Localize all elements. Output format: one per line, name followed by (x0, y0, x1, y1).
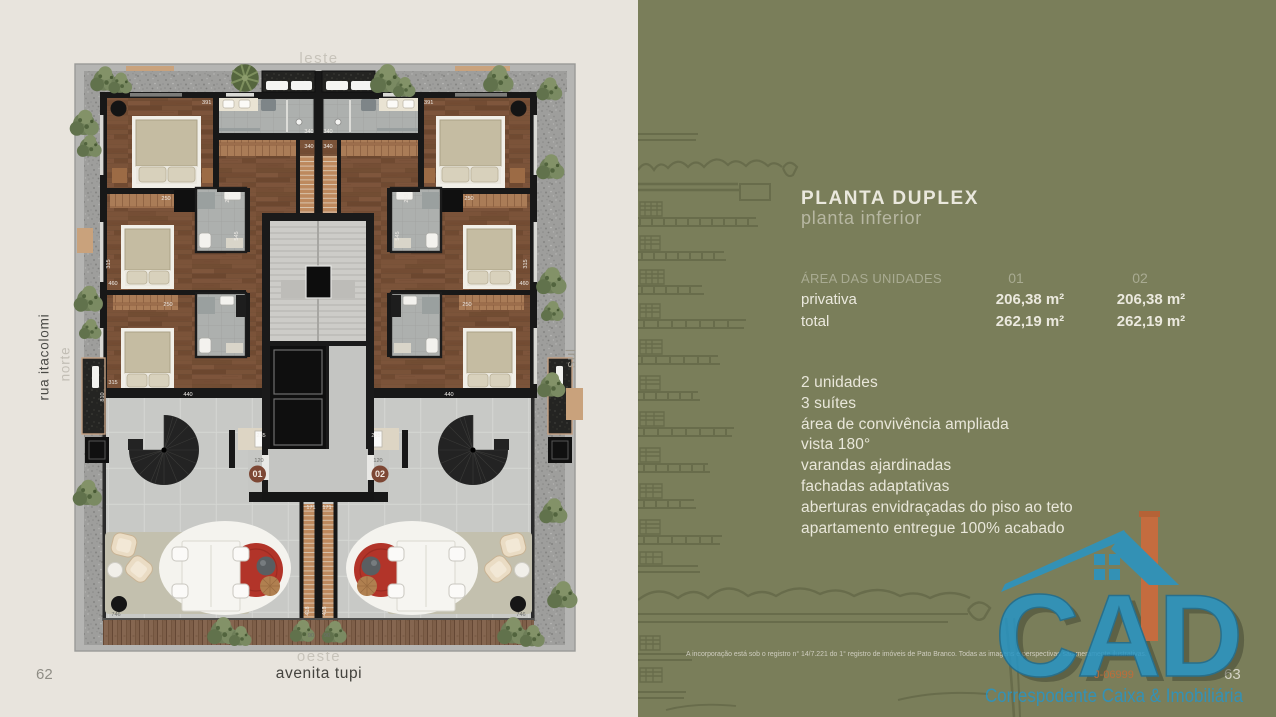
svg-text:418: 418 (305, 606, 311, 615)
svg-text:120: 120 (254, 458, 263, 464)
svg-text:90: 90 (308, 633, 314, 639)
svg-text:391: 391 (202, 100, 211, 106)
svg-text:02: 02 (375, 469, 385, 479)
svg-text:250: 250 (464, 196, 473, 202)
svg-text:171: 171 (306, 505, 315, 511)
svg-text:171: 171 (322, 505, 331, 511)
svg-text:810: 810 (100, 392, 106, 401)
svg-text:250: 250 (163, 302, 172, 308)
svg-text:440: 440 (444, 392, 453, 398)
svg-text:340: 340 (304, 129, 313, 135)
svg-text:J-06999: J-06999 (1094, 669, 1134, 681)
svg-text:418: 418 (322, 606, 328, 615)
svg-text:340: 340 (323, 144, 332, 150)
svg-text:746: 746 (111, 612, 120, 618)
svg-text:315: 315 (108, 380, 117, 386)
svg-text:235: 235 (256, 433, 265, 439)
svg-text:340: 340 (304, 144, 313, 150)
svg-text:Correspodente Caixa & Imobiliá: Correspodente Caixa & Imobiliária (985, 686, 1243, 707)
svg-text:01: 01 (252, 469, 262, 479)
svg-text:225: 225 (225, 193, 231, 202)
svg-text:315: 315 (106, 259, 112, 268)
svg-text:545: 545 (395, 231, 401, 240)
svg-text:250: 250 (161, 196, 170, 202)
svg-text:340: 340 (323, 129, 332, 135)
svg-text:460: 460 (519, 281, 528, 287)
svg-text:235: 235 (371, 433, 380, 439)
svg-text:391: 391 (424, 100, 433, 106)
svg-text:225: 225 (404, 193, 410, 202)
svg-text:250: 250 (462, 302, 471, 308)
svg-text:746: 746 (516, 612, 525, 618)
svg-text:440: 440 (183, 392, 192, 398)
svg-text:460: 460 (108, 281, 117, 287)
svg-text:CAD: CAD (995, 570, 1243, 701)
svg-text:120: 120 (373, 458, 382, 464)
svg-text:315: 315 (523, 259, 529, 268)
svg-text:545: 545 (234, 231, 240, 240)
svg-text:90: 90 (324, 633, 330, 639)
